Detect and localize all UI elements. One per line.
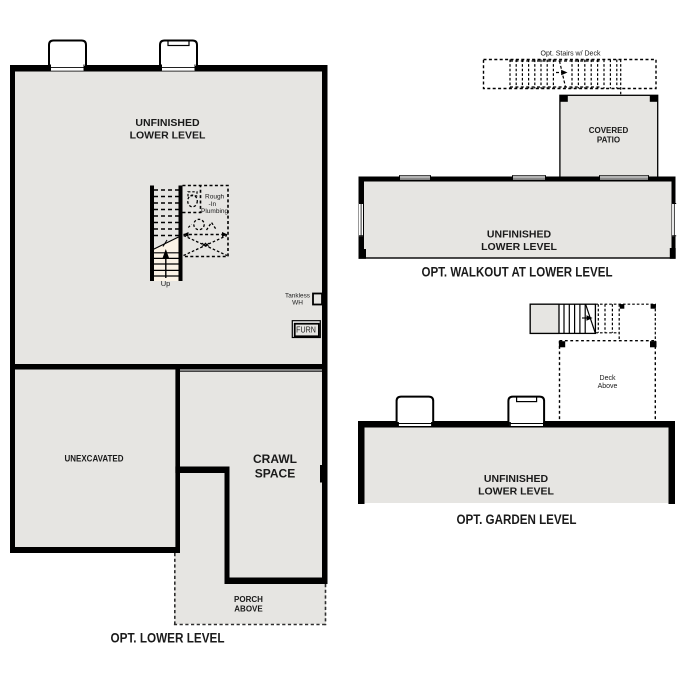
svg-text:OPT. WALKOUT AT LOWER LEVEL: OPT. WALKOUT AT LOWER LEVEL — [422, 265, 613, 280]
svg-text:CRAWL: CRAWL — [253, 452, 297, 466]
svg-text:ABOVE: ABOVE — [234, 605, 263, 614]
svg-text:LOWER LEVEL: LOWER LEVEL — [478, 486, 554, 498]
svg-text:UNFINISHED: UNFINISHED — [135, 117, 200, 129]
svg-text:FURN: FURN — [296, 325, 316, 335]
svg-text:LOWER LEVEL: LOWER LEVEL — [481, 241, 557, 253]
svg-text:Up: Up — [161, 279, 171, 288]
svg-text:WH: WH — [292, 300, 303, 307]
svg-text:Above: Above — [598, 383, 618, 390]
svg-text:Rough: Rough — [205, 194, 225, 201]
svg-text:PATIO: PATIO — [597, 136, 620, 145]
svg-text:UNFINISHED: UNFINISHED — [484, 473, 549, 485]
svg-text:Plumbing: Plumbing — [201, 208, 228, 215]
svg-text:LOWER LEVEL: LOWER LEVEL — [130, 130, 206, 142]
svg-text:SPACE: SPACE — [255, 467, 295, 481]
svg-text:COVERED: COVERED — [589, 126, 629, 135]
svg-text:UNFINISHED: UNFINISHED — [487, 229, 552, 241]
svg-text:Tankless: Tankless — [285, 293, 311, 300]
svg-text:Deck: Deck — [600, 375, 616, 382]
svg-text:Opt. Stairs w/ Deck: Opt. Stairs w/ Deck — [541, 51, 601, 58]
svg-text:UNEXCAVATED: UNEXCAVATED — [65, 454, 124, 464]
svg-text:PORCH: PORCH — [234, 595, 263, 604]
svg-text:OPT. LOWER LEVEL: OPT. LOWER LEVEL — [111, 630, 225, 645]
svg-text:-In: -In — [209, 201, 217, 208]
svg-text:OPT. GARDEN LEVEL: OPT. GARDEN LEVEL — [457, 512, 577, 527]
